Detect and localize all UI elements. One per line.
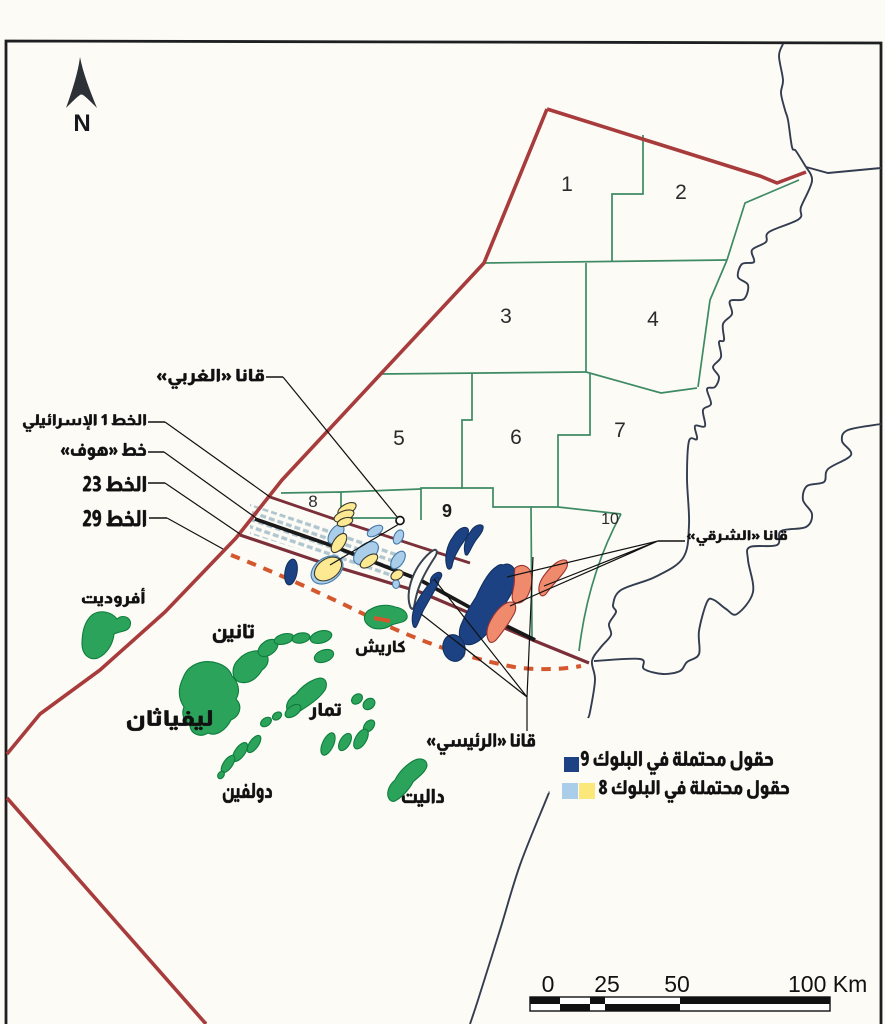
svg-text:6: 6 <box>510 426 522 449</box>
svg-text:25: 25 <box>594 971 620 997</box>
svg-text:50: 50 <box>664 971 690 997</box>
svg-text:1: 1 <box>561 173 573 196</box>
svg-text:9: 9 <box>442 501 452 521</box>
svg-text:7: 7 <box>614 419 626 442</box>
svg-text:0: 0 <box>542 971 555 997</box>
svg-text:2: 2 <box>675 181 687 204</box>
svg-text:5: 5 <box>393 427 405 450</box>
svg-text:4: 4 <box>647 308 659 331</box>
svg-text:N: N <box>73 110 90 137</box>
svg-text:10: 10 <box>601 511 619 528</box>
svg-text:3: 3 <box>500 305 512 328</box>
svg-text:100 Km: 100 Km <box>788 971 867 997</box>
svg-text:8: 8 <box>308 492 317 511</box>
